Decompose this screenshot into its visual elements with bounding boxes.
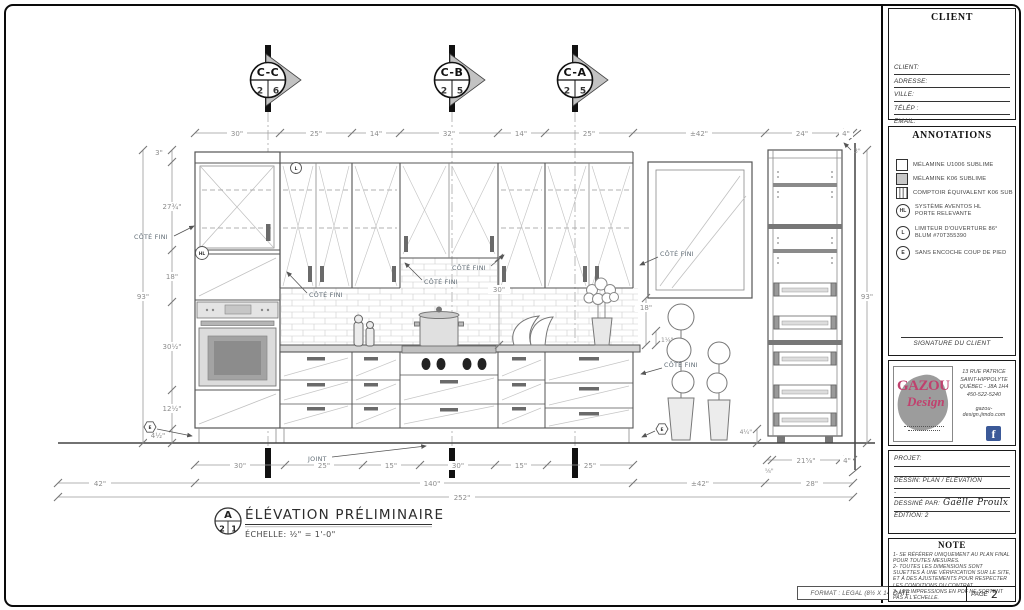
e-marker-right: E bbox=[661, 427, 664, 433]
material-label: COMPTOIR ÉQUIVALENT K06 SUB bbox=[913, 190, 1013, 196]
project-field-projet: PROJET: bbox=[894, 455, 1010, 467]
dim-window-sill: 18" bbox=[640, 304, 652, 312]
date-cell: DATE bbox=[889, 587, 967, 601]
gazou-design-logo: GAZOU Design bbox=[893, 366, 953, 442]
section-marker-cc-num: 2 bbox=[257, 87, 263, 97]
dim-top-0: 30" bbox=[231, 130, 243, 138]
dim-total: 252" bbox=[454, 494, 471, 502]
symbol-legend-row: L LIMITEUR D'OUVERTURE 86° BLUM #70T3553… bbox=[896, 226, 998, 240]
project-field-empty bbox=[894, 467, 1010, 477]
signature-label: SIGNATURE DU CLIENT bbox=[901, 340, 1003, 347]
drawing-sheet: C-C 2 6 C-B 2 5 C-A 2 5 bbox=[0, 0, 1024, 610]
dim-pantry-0: ⅝" bbox=[765, 468, 774, 475]
dim-left-5: 4½" bbox=[151, 432, 165, 440]
symbol-label: LIMITEUR D'OUVERTURE 86° BLUM #70T355390 bbox=[915, 226, 998, 240]
symbol-label: SANS ENCOCHE COUP DE PIED bbox=[915, 250, 1006, 257]
cote-fini-label-2: CÔTÉ FINI bbox=[309, 290, 343, 299]
topiary-plants bbox=[667, 304, 730, 440]
logo-name-top: GAZOU bbox=[897, 378, 950, 395]
address-line: 13 RUE PATRICE bbox=[955, 369, 1013, 377]
client-block-title: CLIENT bbox=[889, 9, 1015, 23]
facebook-icon: f bbox=[986, 426, 1001, 441]
logo-tagline-rule bbox=[904, 426, 944, 427]
l-marker: L bbox=[295, 166, 298, 172]
base-cabinets bbox=[280, 352, 633, 443]
title-bubble-letter: A bbox=[224, 510, 232, 521]
dim-top-4: 14" bbox=[515, 130, 527, 138]
page-label: PAGE bbox=[971, 591, 988, 598]
dim-run-5: 25" bbox=[584, 462, 596, 470]
dim-right-total: 93" bbox=[861, 293, 873, 301]
logo-name-bottom: Design bbox=[907, 394, 945, 410]
dim-overall-0: 42" bbox=[94, 480, 106, 488]
dim-pantry-1: 21⅝" bbox=[797, 457, 816, 465]
dim-overall-2: ±42" bbox=[691, 480, 709, 488]
drawing-title-text: ÉLÉVATION PRÉLIMINAIRE bbox=[245, 506, 444, 523]
dim-run-1: 25" bbox=[318, 462, 330, 470]
dim-top-2: 14" bbox=[370, 130, 382, 138]
section-marker-cb-name: C-B bbox=[441, 66, 464, 79]
designer-logo-block: GAZOU Design 13 RUE PATRICE SAINT-HIPPOL… bbox=[888, 360, 1016, 446]
elevation-drawing: C-C 2 6 C-B 2 5 C-A 2 5 bbox=[0, 0, 884, 610]
drawing-title: A 2 1 ÉLÉVATION PRÉLIMINAIRE ÉCHELLE: ½"… bbox=[215, 506, 444, 539]
client-block: CLIENT CLIENT: ADRESSE: VILLE: TÉLÉP : E… bbox=[888, 8, 1016, 120]
symbol-label-line2: PORTE RELEVANTE bbox=[915, 211, 982, 218]
dim-left-2: 18" bbox=[166, 273, 178, 281]
dim-run-2: 15" bbox=[385, 462, 397, 470]
annotations-block: ANNOTATIONS MÉLAMINE U1006 SUBLIME MÉLAM… bbox=[888, 126, 1016, 356]
cooking-pot bbox=[415, 307, 464, 346]
client-field-adresse: ADRESSE: bbox=[894, 75, 1010, 89]
dim-top-1: 25" bbox=[310, 130, 322, 138]
section-marker-cb-sheet: 5 bbox=[457, 87, 463, 97]
section-marker-ca: C-A 2 5 bbox=[558, 54, 609, 106]
client-field-telep: TÉLÉP : bbox=[894, 102, 1010, 116]
note-item-2: 2- TOUTES LES DIMENSIONS SONT SUJETTES À… bbox=[893, 564, 1011, 588]
dim-top-3: 32" bbox=[443, 130, 455, 138]
annotations-title: ANNOTATIONS bbox=[889, 127, 1015, 141]
dim-top-leader: 3" bbox=[854, 148, 861, 155]
drawn-by-label: DESSINÉ PAR: bbox=[894, 500, 940, 507]
wall-oven bbox=[197, 302, 278, 386]
dim-pantry-toe: 4¼" bbox=[740, 429, 753, 436]
symbol-label-line1: LIMITEUR D'OUVERTURE 86° bbox=[915, 226, 998, 233]
dim-left-3: 30½" bbox=[163, 343, 182, 351]
client-field-ville: VILLE: bbox=[894, 88, 1010, 102]
drawn-by-value: Gaëlle Proulx bbox=[943, 498, 1008, 508]
e-marker-left: E bbox=[149, 425, 152, 431]
note-title: NOTE bbox=[889, 539, 1015, 550]
date-page-row: DATE PAGE 2 bbox=[889, 586, 1015, 601]
cote-fini-label-6: CÔTÉ FINI bbox=[664, 360, 698, 369]
cote-fini-label-1: CÔTÉ FINI bbox=[134, 232, 168, 241]
section-marker-ca-sheet: 5 bbox=[580, 87, 586, 97]
section-marker-cb-num: 2 bbox=[441, 87, 447, 97]
dim-left-total: 93" bbox=[137, 293, 149, 301]
cote-fini-label-4: CÔTÉ FINI bbox=[452, 263, 486, 272]
client-field-client: CLIENT: bbox=[894, 61, 1010, 75]
joint-label: JOINT bbox=[307, 456, 327, 463]
material-legend-row: COMPTOIR ÉQUIVALENT K06 SUB bbox=[896, 187, 1013, 199]
note-block: NOTE 1- SE RÉFÉRER UNIQUEMENT AU PLAN FI… bbox=[888, 538, 1016, 602]
symbol-legend-row: E SANS ENCOCHE COUP DE PIED bbox=[896, 246, 1006, 260]
dim-run-3: 30" bbox=[452, 462, 464, 470]
client-fields: CLIENT: ADRESSE: VILLE: TÉLÉP : EMAIL: bbox=[894, 61, 1010, 129]
address-line: 450-522-5240 bbox=[955, 392, 1013, 400]
hl-marker: HL bbox=[199, 251, 206, 257]
project-field-dessin: DESSIN: PLAN / ÉLÉVATION bbox=[894, 477, 1010, 489]
hl-symbol-icon: HL bbox=[896, 204, 910, 218]
dim-top-6: ±42" bbox=[690, 130, 708, 138]
material-legend-row: MÉLAMINE K06 SUBLIME bbox=[896, 173, 986, 185]
material-legend-row: MÉLAMINE U1006 SUBLIME bbox=[896, 159, 993, 171]
designer-address: 13 RUE PATRICE SAINT-HIPPOLYTE QUÉBEC - … bbox=[955, 369, 1013, 418]
title-bubble-sheet: 1 bbox=[231, 525, 237, 534]
tall-oven-cabinet bbox=[195, 152, 280, 443]
project-field-edition: ÉDITION: 2 bbox=[894, 512, 1010, 523]
dim-hood-height: 30" bbox=[493, 286, 505, 294]
cote-fini-label-3: CÔTÉ FINI bbox=[424, 277, 458, 286]
signature-line bbox=[901, 337, 1003, 338]
dim-run-4: 15" bbox=[515, 462, 527, 470]
section-marker-cc-name: C-C bbox=[257, 66, 279, 79]
dim-overall-1: 140" bbox=[424, 480, 441, 488]
material-label: MÉLAMINE U1006 SUBLIME bbox=[913, 162, 993, 168]
symbol-label: SYSTÈME AVENTOS HL PORTE RELEVANTE bbox=[915, 204, 982, 218]
dim-run-0: 30" bbox=[234, 462, 246, 470]
cote-fini-label-5: CÔTÉ FINI bbox=[660, 249, 694, 258]
top-leader-line bbox=[844, 143, 851, 150]
designer-website: gazou-design.jimdo.com bbox=[955, 406, 1013, 418]
swatch-gray bbox=[896, 173, 908, 185]
signature-area: SIGNATURE DU CLIENT bbox=[901, 337, 1003, 347]
project-block: PROJET: DESSIN: PLAN / ÉLÉVATION - DESSI… bbox=[888, 450, 1016, 534]
project-field-dash: - bbox=[894, 489, 1010, 498]
l-symbol-icon: L bbox=[896, 226, 910, 240]
section-marker-ca-name: C-A bbox=[564, 66, 587, 79]
drawing-scale-text: ÉCHELLE: ½" = 1'-0" bbox=[245, 528, 336, 539]
section-marker-ca-num: 2 bbox=[564, 87, 570, 97]
dim-top-8: 4" bbox=[842, 130, 850, 138]
address-line: QUÉBEC - J8A 1H4 bbox=[955, 384, 1013, 392]
material-label: MÉLAMINE K06 SUBLIME bbox=[913, 176, 986, 182]
dim-left-4: 12½" bbox=[163, 405, 182, 413]
pantry-shelving bbox=[768, 150, 842, 443]
page-cell: PAGE 2 bbox=[967, 587, 1015, 601]
dim-left-0: 3" bbox=[155, 149, 163, 157]
logo-tagline-rule bbox=[908, 430, 940, 431]
section-marker-cb: C-B 2 5 bbox=[435, 54, 486, 106]
window bbox=[648, 162, 752, 298]
dim-overall-3: 28" bbox=[806, 480, 818, 488]
dim-pantry-2: 4" bbox=[843, 457, 851, 465]
dim-top-5: 25" bbox=[583, 130, 595, 138]
title-bubble-num: 2 bbox=[219, 525, 225, 534]
swatch-hatch bbox=[896, 187, 908, 199]
symbol-label-line1: SYSTÈME AVENTOS HL bbox=[915, 204, 982, 211]
dim-top-7: 24" bbox=[796, 130, 808, 138]
titleblock-divider bbox=[881, 6, 883, 603]
project-field-drawn-by: DESSINÉ PAR:Gaëlle Proulx bbox=[894, 498, 1010, 512]
note-item-1: 1- SE RÉFÉRER UNIQUEMENT AU PLAN FINAL P… bbox=[893, 552, 1011, 564]
section-marker-cc-sheet: 6 bbox=[273, 87, 279, 97]
page-number: 2 bbox=[991, 588, 998, 601]
dim-counter-edge: 1¼" bbox=[661, 337, 674, 344]
dim-left-1: 27¾" bbox=[163, 203, 182, 211]
symbol-legend-row: HL SYSTÈME AVENTOS HL PORTE RELEVANTE bbox=[896, 204, 982, 218]
swatch-white bbox=[896, 159, 908, 171]
symbol-label-line2: BLUM #70T355390 bbox=[915, 233, 998, 240]
section-marker-cc: C-C 2 6 bbox=[251, 54, 302, 106]
e-symbol-icon: E bbox=[896, 246, 910, 260]
symbol-label-line1: SANS ENCOCHE COUP DE PIED bbox=[915, 250, 1006, 257]
